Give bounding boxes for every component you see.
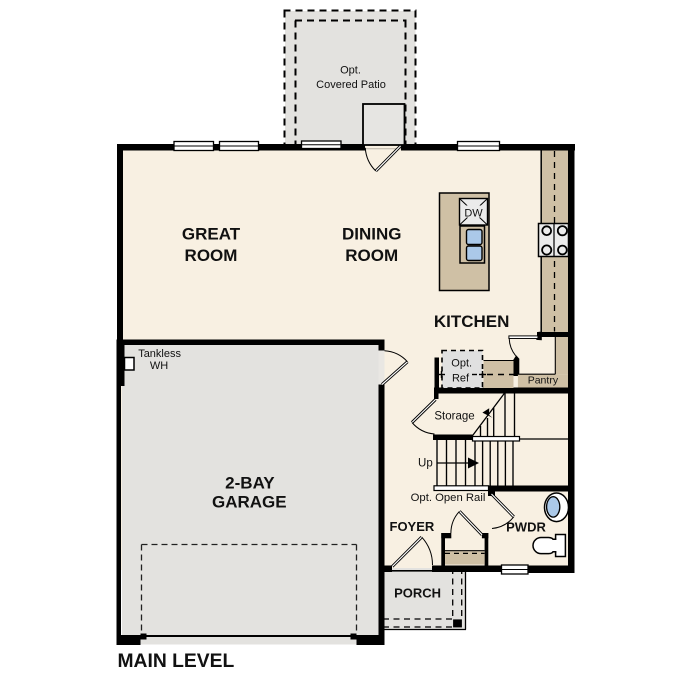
svg-text:DINING: DINING xyxy=(342,225,402,244)
svg-text:GARAGE: GARAGE xyxy=(212,492,287,511)
svg-text:KITCHEN: KITCHEN xyxy=(434,312,510,331)
svg-text:MAIN LEVEL: MAIN LEVEL xyxy=(118,651,235,672)
svg-text:Up: Up xyxy=(418,458,433,470)
svg-text:2-BAY: 2-BAY xyxy=(225,473,275,492)
svg-text:ROOM: ROOM xyxy=(345,246,398,265)
svg-text:PWDR: PWDR xyxy=(506,520,546,535)
svg-text:Pantry: Pantry xyxy=(528,374,559,386)
svg-text:Storage: Storage xyxy=(434,411,474,423)
svg-text:Opt.: Opt. xyxy=(451,358,472,370)
svg-text:FOYER: FOYER xyxy=(390,519,435,534)
svg-text:ROOM: ROOM xyxy=(185,246,238,265)
svg-text:Ref: Ref xyxy=(452,373,470,385)
svg-text:GREAT: GREAT xyxy=(182,225,241,244)
svg-text:Opt.: Opt. xyxy=(340,64,361,76)
svg-text:Opt. Open Rail: Opt. Open Rail xyxy=(411,492,486,504)
svg-text:WH: WH xyxy=(150,360,168,372)
svg-text:PORCH: PORCH xyxy=(394,586,441,601)
svg-text:Covered Patio: Covered Patio xyxy=(316,79,386,91)
svg-text:Tankless: Tankless xyxy=(138,348,181,360)
svg-text:DW: DW xyxy=(464,208,483,220)
